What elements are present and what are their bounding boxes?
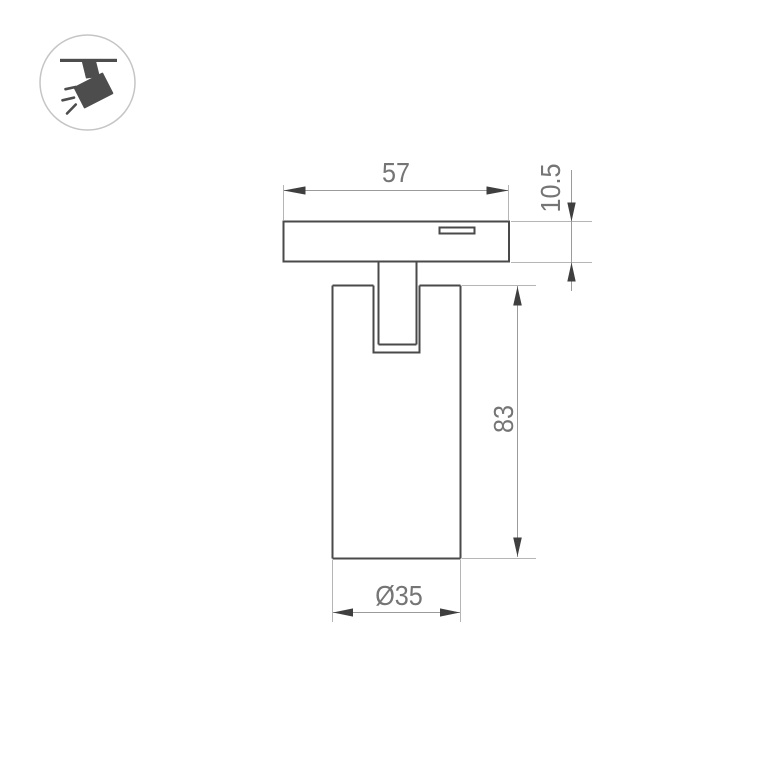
- dim-label-base-width: 57: [382, 157, 410, 189]
- cylinder-body-outline: [333, 286, 461, 559]
- track-spotlight-icon: [40, 35, 135, 130]
- dimension-lines: [284, 170, 572, 613]
- adapter-contact-slot: [440, 228, 475, 234]
- dim-label-body-height: 83: [488, 405, 520, 433]
- dim-label-base-height: 10.5: [535, 163, 567, 212]
- track-adapter-outline: [284, 222, 510, 262]
- body-slot-outline: [374, 286, 420, 353]
- dim-label-body-diameter: Ø35: [375, 580, 423, 612]
- technical-drawing: 57 10.5 83 Ø35: [0, 0, 767, 767]
- mount-stem-outline: [379, 262, 417, 345]
- dimension-extension-lines: [284, 185, 593, 622]
- product-drawing-page: 57 10.5 83 Ø35: [0, 0, 767, 767]
- dimension-arrows: [284, 186, 576, 616]
- dimension-labels: 57 10.5 83 Ø35: [375, 157, 566, 612]
